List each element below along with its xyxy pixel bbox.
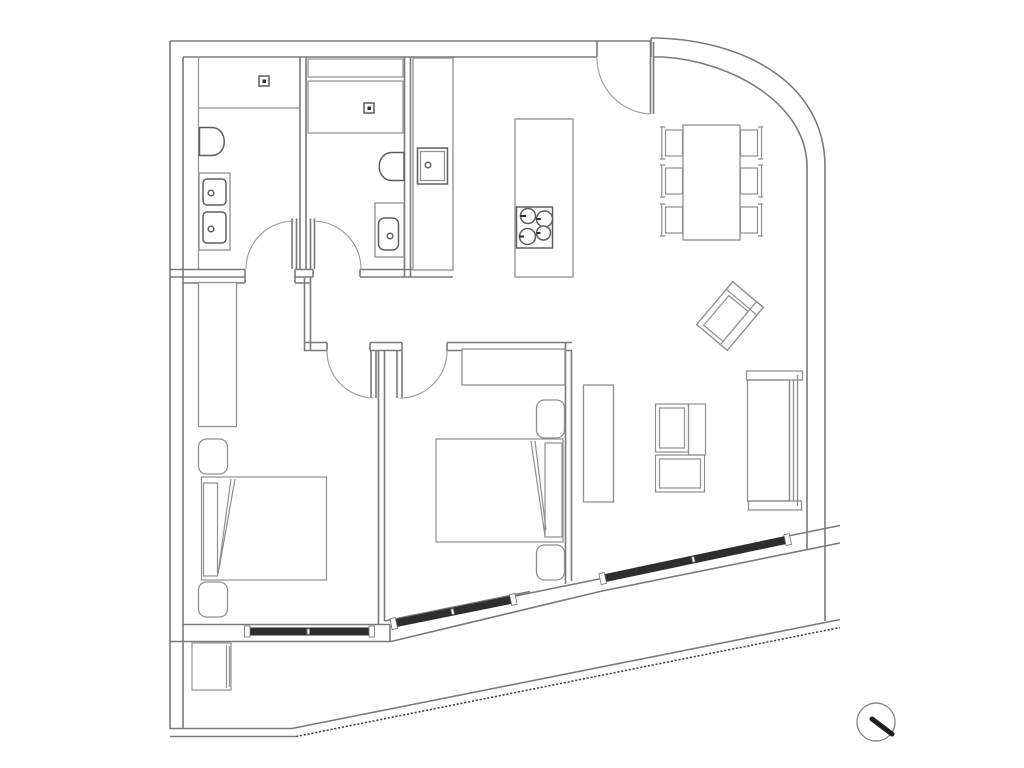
wardrobe bbox=[199, 283, 237, 427]
toilet-icon bbox=[379, 153, 404, 181]
bathroom1-door bbox=[246, 219, 297, 270]
media-unit bbox=[656, 404, 706, 492]
nightstand bbox=[199, 439, 228, 474]
bedroom2-door bbox=[397, 351, 447, 399]
kitchen bbox=[413, 58, 573, 277]
armchair bbox=[697, 282, 764, 351]
dining-table bbox=[683, 125, 740, 240]
bathroom2-door bbox=[311, 219, 362, 270]
entry-door bbox=[597, 42, 654, 114]
vanity-double-sink bbox=[199, 173, 230, 250]
wardrobe bbox=[462, 349, 565, 385]
kitchen-island bbox=[515, 119, 573, 277]
sideboard bbox=[584, 385, 614, 502]
facade-walls bbox=[170, 526, 840, 642]
shower-drain-icon bbox=[364, 103, 374, 113]
window-band-bedroom2 bbox=[390, 594, 517, 630]
bathroom-2 bbox=[308, 59, 404, 257]
sofa bbox=[747, 371, 803, 510]
terrace-planter bbox=[192, 643, 231, 690]
nightstand bbox=[537, 545, 565, 580]
bedroom-1 bbox=[199, 283, 327, 618]
bedroom-2 bbox=[436, 349, 565, 580]
floor-plan-drawing bbox=[0, 0, 1024, 768]
dining-area bbox=[660, 125, 763, 240]
sink-vanity bbox=[375, 203, 404, 257]
nightstand bbox=[537, 400, 565, 438]
window-band-bedroom1 bbox=[245, 626, 375, 637]
kitchen-sink-icon bbox=[418, 148, 448, 184]
nightstand bbox=[199, 582, 228, 617]
living-room bbox=[584, 282, 803, 510]
floor-plan-page bbox=[0, 0, 1024, 768]
shower-drain-icon bbox=[259, 76, 269, 86]
compass-symbol-icon bbox=[857, 703, 895, 741]
terrace-parapet bbox=[170, 620, 840, 737]
bed bbox=[202, 477, 327, 580]
bathroom-1 bbox=[199, 57, 300, 269]
toilet-icon bbox=[200, 128, 225, 156]
bedroom1-door bbox=[327, 351, 376, 399]
bed bbox=[436, 439, 563, 542]
